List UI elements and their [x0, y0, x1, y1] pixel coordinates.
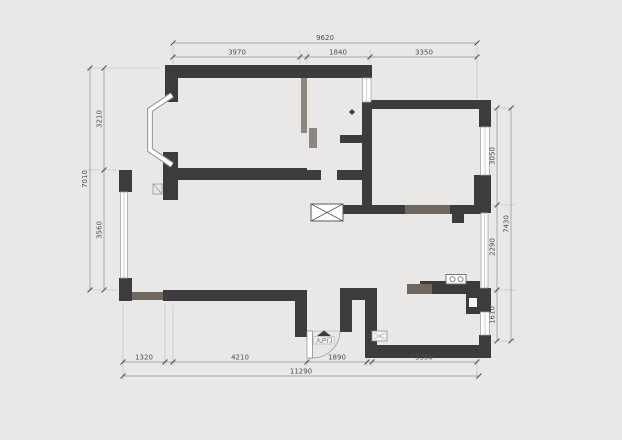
floor-plan-drawing: 入户门 9620 3970 1840 3350 7010 3210: [0, 0, 622, 440]
entry-door-label: 入户门: [316, 336, 333, 344]
door-marker-icon: [153, 184, 162, 194]
wall-segment: [340, 300, 352, 332]
dim-right-seg1: 3050: [489, 147, 497, 165]
diamond-marker-icon: [349, 109, 355, 115]
dim-bottom-seg2: 4210: [231, 354, 249, 362]
wall-segment: [340, 135, 362, 143]
wall-segment: [479, 100, 491, 127]
wall-segment: [301, 78, 307, 133]
window: [481, 213, 488, 288]
dim-left-seg2: 3560: [96, 221, 104, 239]
wall-segment: [343, 205, 405, 214]
shaft-box-icon: [311, 204, 343, 221]
dim-bottom-seg4: 3350: [415, 354, 433, 362]
dim-left-seg1: 3210: [96, 110, 104, 128]
wall-segment: [119, 278, 132, 301]
dim-right-overall: 7430: [503, 215, 511, 233]
wall-segment: [340, 288, 377, 300]
stove-icon: [446, 275, 466, 285]
dim-top-seg3: 3350: [415, 49, 433, 57]
wall-segment: [405, 205, 450, 214]
wall-segment: [163, 168, 307, 180]
wall-segment: [407, 284, 432, 294]
wall-segment: [337, 170, 372, 180]
wall-segment: [307, 170, 321, 180]
wall-segment: [295, 301, 307, 337]
floor-plan-canvas: 入户门 9620 3970 1840 3350 7010 3210: [0, 0, 622, 440]
dim-bottom-seg1: 1320: [135, 354, 153, 362]
door-leaf: [307, 331, 313, 358]
dimensions-right: 3050 2290 1610 7430: [489, 106, 516, 344]
dim-bottom-seg3: 1890: [328, 354, 346, 362]
dim-right-seg2: 2290: [489, 238, 497, 256]
wall-segment: [362, 102, 372, 180]
dim-bottom-overall: 11290: [290, 368, 312, 376]
wall-segment: [163, 290, 307, 301]
dim-right-seg3: 1610: [489, 306, 497, 324]
wall-segment: [119, 170, 132, 192]
wall-segment: [165, 65, 372, 78]
dim-top-seg1: 3970: [228, 49, 246, 57]
dim-left-overall: 7010: [81, 170, 89, 188]
bench-icon: [372, 331, 387, 341]
dim-top-seg2: 1840: [329, 49, 347, 57]
wall-segment: [452, 214, 464, 223]
wall-segment: [367, 100, 488, 109]
window: [363, 78, 372, 102]
dim-top-overall: 9620: [316, 34, 334, 42]
walls: [119, 65, 491, 358]
window: [121, 192, 128, 278]
sink-icon: [468, 297, 478, 308]
wall-segment: [309, 128, 317, 148]
